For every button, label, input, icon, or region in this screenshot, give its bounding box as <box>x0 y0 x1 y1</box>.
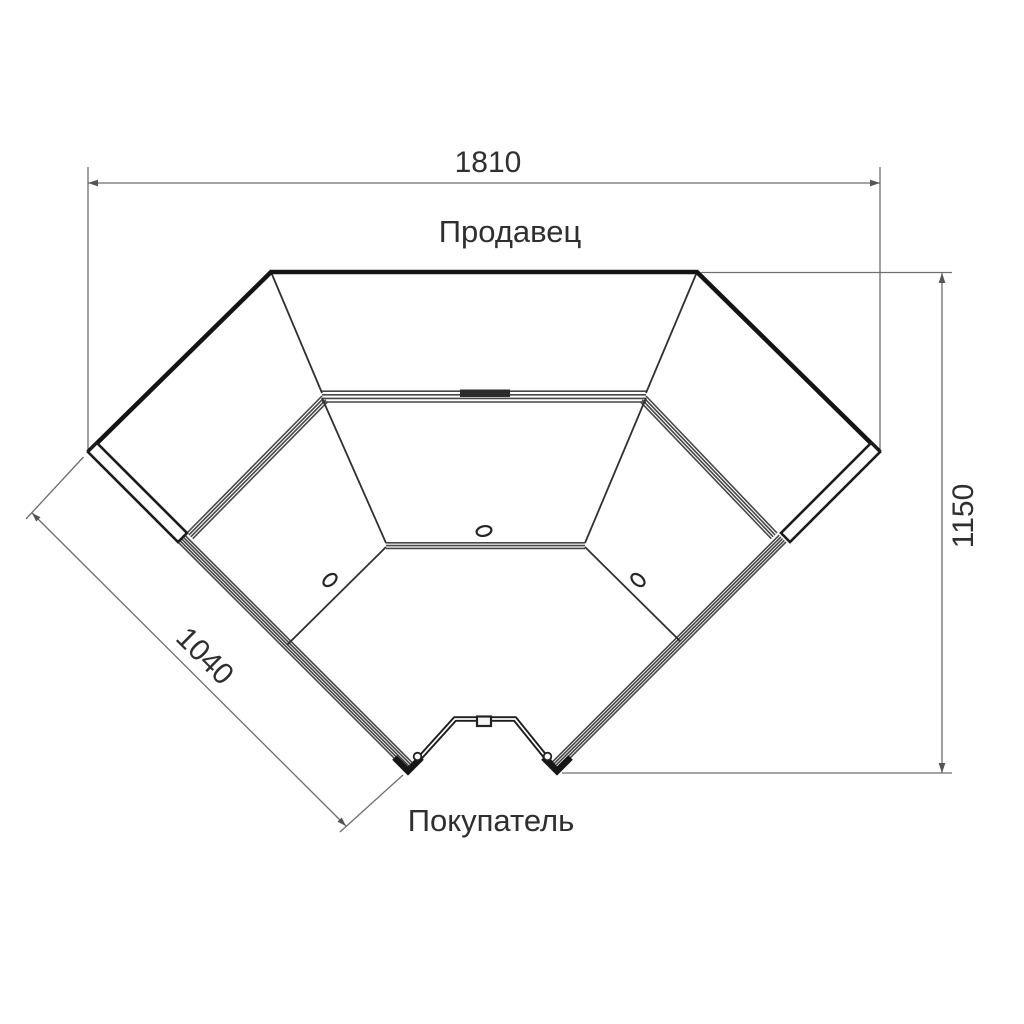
inner-corner-edge-left <box>271 272 322 393</box>
band-line <box>644 398 775 535</box>
band-line <box>191 400 326 537</box>
band-line <box>554 540 784 770</box>
dimension-width-value: 1810 <box>455 146 522 179</box>
band-line <box>187 396 322 533</box>
extension-line-lower <box>340 775 403 832</box>
band-line <box>553 539 783 769</box>
deck-holes <box>321 525 647 589</box>
dimension-line <box>32 513 346 826</box>
inner-corner-edge-right <box>646 272 697 393</box>
band-line <box>189 398 324 535</box>
back-band-horizontal <box>322 390 646 403</box>
deck-miter-right <box>585 547 680 641</box>
arrowhead-left <box>88 180 98 187</box>
well-left-edge <box>322 398 386 543</box>
arrowhead-right <box>870 180 880 187</box>
buyer-side-label: Покупатель <box>408 803 575 838</box>
band-line <box>549 535 779 765</box>
dimension-wing-value: 1040 <box>169 621 240 692</box>
well-right-edge <box>585 398 646 543</box>
outer-back-edge <box>88 272 880 452</box>
arrowhead-top <box>939 273 946 283</box>
deck-hole-left <box>321 572 339 589</box>
band-line <box>640 402 771 539</box>
deck-hole-center <box>476 525 493 538</box>
arrowhead-bottom <box>939 763 946 773</box>
deck-hole-right <box>629 572 647 589</box>
back-band-center-segment <box>460 390 510 398</box>
counter-plan-drawing: 1810 1150 1040 <box>0 0 1024 1024</box>
front-notch <box>408 717 557 772</box>
right-end-panel <box>781 443 880 542</box>
screenshot-canvas: 1810 1150 1040 <box>0 0 1024 1024</box>
dimension-depth-value: 1150 <box>947 484 980 549</box>
corner-bolt-hole <box>414 753 422 761</box>
left-end-panel <box>88 443 187 542</box>
corner-bolt-hole <box>544 753 552 761</box>
band-line <box>642 400 773 537</box>
deck-miter-left <box>287 547 386 645</box>
seller-side-label: Продавец <box>439 214 582 249</box>
well-bottom-edge <box>386 543 585 549</box>
back-band-left <box>187 396 328 539</box>
band-line <box>193 402 328 539</box>
band-line <box>646 396 777 533</box>
extension-line-upper <box>26 457 84 519</box>
dimension-overall-width: 1810 <box>88 146 880 449</box>
band-line <box>551 537 781 767</box>
notch-latch <box>477 717 491 727</box>
inner-structure <box>271 272 697 645</box>
back-band-right <box>640 396 777 539</box>
front-glass-band-right <box>549 535 786 772</box>
band-line <box>556 542 786 772</box>
